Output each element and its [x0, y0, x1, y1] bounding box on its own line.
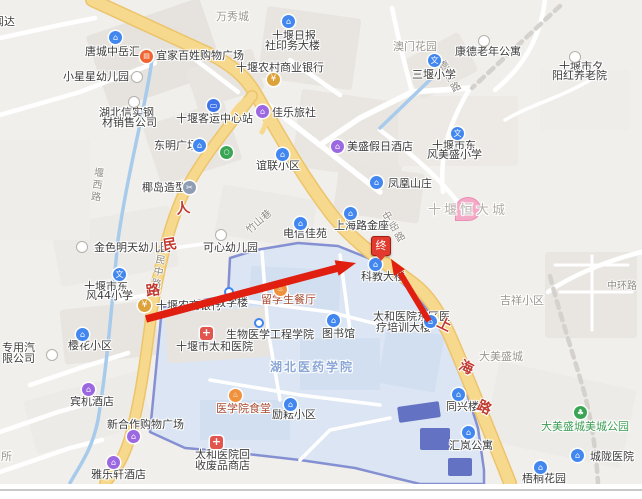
poi-nongshang-label[interactable]: 十堰农商银行	[156, 300, 222, 311]
generic-poi-icon[interactable]	[478, 35, 490, 47]
poi-fenghuang-label[interactable]: 凤凰山庄	[388, 178, 432, 189]
poi-taihe-dongqu-line2[interactable]: 疗培训大楼	[376, 322, 431, 333]
poi-yxy-canteen-label[interactable]: 医学院食堂	[216, 403, 271, 414]
poi-huilan-label[interactable]: 汇岚公寓	[449, 440, 493, 451]
building-icon[interactable]	[370, 176, 383, 189]
area-label-hubei-yiyao: 湖北医药学院	[270, 361, 354, 373]
poi-meisheng-hotel-label[interactable]: 美盛假日酒店	[347, 141, 413, 152]
green-poi-icon[interactable]	[220, 146, 233, 159]
poi-taihe-label[interactable]: 十堰市太和医院	[176, 341, 253, 352]
shopping-mall-icon[interactable]	[127, 430, 140, 443]
poi-dongming-label[interactable]: 东明广场	[154, 140, 198, 151]
building-icon[interactable]	[462, 426, 475, 439]
building-icon[interactable]	[109, 31, 122, 44]
building-icon[interactable]	[193, 139, 206, 152]
poi-meisheng-school-line2[interactable]: 风美盛小学	[427, 149, 482, 160]
road-label-renmin-char: 民	[162, 237, 178, 253]
poi-wenda-label[interactable]: 闻达	[0, 16, 15, 27]
area-label-hengda: 十堰恒大城	[428, 204, 508, 217]
route-end-pin[interactable]: 终	[371, 236, 391, 256]
hospital-icon[interactable]	[200, 327, 213, 340]
area-label-dameisheng: 大美盛城	[479, 351, 523, 362]
poi-kejiao-label[interactable]: 科教大楼	[361, 271, 405, 282]
poi-keyun-label[interactable]: 十堰客运中心站	[176, 113, 253, 124]
poi-jinse-label[interactable]: 金色明天幼儿园	[94, 242, 171, 253]
poi-kangde-label[interactable]: 康德老年公寓	[455, 46, 521, 57]
poi-company-line2[interactable]: 限公司	[2, 353, 35, 364]
map-window: 人 民 路 上 海 路 人民中路 中岳路 竹山巷 堰西路 德阳路 中环路 闻达 …	[0, 0, 642, 499]
restaurant-icon[interactable]	[274, 283, 287, 296]
hotel-icon[interactable]	[256, 105, 269, 118]
poi-recycle-line2[interactable]: 收废品商店	[195, 460, 250, 471]
poi-binji-label[interactable]: 宾机酒店	[70, 396, 114, 407]
restaurant-icon[interactable]	[229, 389, 242, 402]
poi-yedao-label[interactable]: 椰岛造型	[142, 182, 186, 193]
poi-yinghua-label[interactable]: 樱花小区	[68, 340, 112, 351]
poi-ruralbank-label[interactable]: 十堰农村商业银行	[236, 62, 324, 73]
poi-xinshi-label-line2[interactable]: 材销售公司	[102, 117, 157, 128]
building-icon[interactable]	[452, 388, 465, 401]
building-icon[interactable]	[571, 449, 584, 462]
park-icon[interactable]	[574, 406, 587, 419]
bank-icon[interactable]	[138, 299, 151, 312]
building-icon[interactable]	[284, 398, 297, 411]
poi-df44-line2[interactable]: 风44小学	[86, 290, 133, 301]
poi-jiale-label[interactable]: 佳乐旅社	[272, 107, 316, 118]
scissors-icon[interactable]	[183, 181, 196, 194]
school-icon[interactable]	[451, 127, 464, 140]
poi-ribao-label-line2[interactable]: 社印务大楼	[265, 40, 320, 51]
building-icon[interactable]	[76, 328, 89, 341]
small-poi-icon[interactable]	[254, 318, 264, 328]
poi-sanyan-label[interactable]: 三堰小学	[412, 69, 456, 80]
poi-xiaoxingxing-label[interactable]: 小星星幼儿园	[63, 71, 129, 82]
generic-poi-icon[interactable]	[128, 96, 140, 108]
poi-wutong-label[interactable]: 梧桐花园	[522, 473, 566, 484]
road-label-zhonghuanlu: 中环路	[607, 277, 637, 292]
poi-xiyanghong-label-line2[interactable]: 阳红养老院	[552, 70, 607, 81]
poi-suo-partial-label: 所	[1, 451, 12, 462]
poi-jiaoxuelou-label[interactable]: 教学楼	[215, 297, 248, 308]
area-label-jixiang: 吉祥小区	[500, 295, 544, 306]
shopping-icon[interactable]	[140, 50, 153, 63]
hospital-icon[interactable]	[210, 436, 223, 449]
building-icon[interactable]	[282, 15, 295, 28]
building-icon[interactable]	[294, 217, 307, 230]
poi-tangcheng-label[interactable]: 唐城中岳汇	[85, 46, 140, 57]
poi-shengwu-label[interactable]: 生物医学工程学院	[226, 329, 314, 340]
building-icon[interactable]	[344, 207, 357, 220]
building-icon[interactable]	[534, 461, 547, 474]
poi-jinzuo-label[interactable]: 上海路金座	[334, 220, 389, 231]
generic-poi-icon[interactable]	[131, 71, 143, 83]
building-icon[interactable]	[276, 148, 289, 161]
poi-kexin-label[interactable]: 可心幼儿园	[203, 242, 258, 253]
hotel-icon[interactable]	[107, 456, 120, 469]
poi-yijia-label[interactable]: 宜家百姓购物广场	[156, 50, 244, 61]
area-label-aomen: 澳门花园	[393, 41, 437, 52]
generic-poi-icon[interactable]	[569, 51, 581, 63]
poi-chenglong-label[interactable]: 城陇医院	[590, 451, 634, 462]
generic-poi-icon[interactable]	[215, 229, 227, 241]
generic-poi-icon[interactable]	[46, 349, 58, 361]
hotel-icon[interactable]	[82, 383, 95, 396]
poi-tushuguan-label[interactable]: 图书馆	[322, 328, 355, 339]
map-canvas[interactable]: 人 民 路 上 海 路 人民中路 中岳路 竹山巷 堰西路 德阳路 中环路 闻达 …	[0, 0, 642, 484]
road-label-renmin-char: 人	[175, 201, 191, 217]
building-icon[interactable]	[327, 314, 340, 327]
window-bottom-border	[0, 489, 642, 491]
poi-yalexuan-label[interactable]: 雅乐轩酒店	[91, 469, 146, 480]
generic-poi-icon[interactable]	[76, 241, 88, 253]
road-label-renmin-char: 路	[145, 283, 161, 299]
poi-meicheng-park-label[interactable]: 大美盛城美城公园	[541, 421, 629, 432]
poi-liuxuesheng-label[interactable]: 留学生餐厅	[261, 294, 316, 305]
hotel-icon[interactable]	[331, 140, 344, 153]
small-poi-icon[interactable]	[224, 287, 234, 297]
school-icon[interactable]	[428, 54, 441, 67]
area-label-wanxiucheng: 万秀城	[216, 11, 249, 22]
poi-xinhezuo-label[interactable]: 新合作购物广场	[107, 419, 184, 430]
window-bottom-margin	[0, 484, 642, 499]
school-icon[interactable]	[113, 268, 126, 281]
poi-yilian-label[interactable]: 谊联小区	[256, 160, 300, 171]
bus-station-icon[interactable]	[207, 99, 220, 112]
bank-icon[interactable]	[267, 73, 280, 86]
